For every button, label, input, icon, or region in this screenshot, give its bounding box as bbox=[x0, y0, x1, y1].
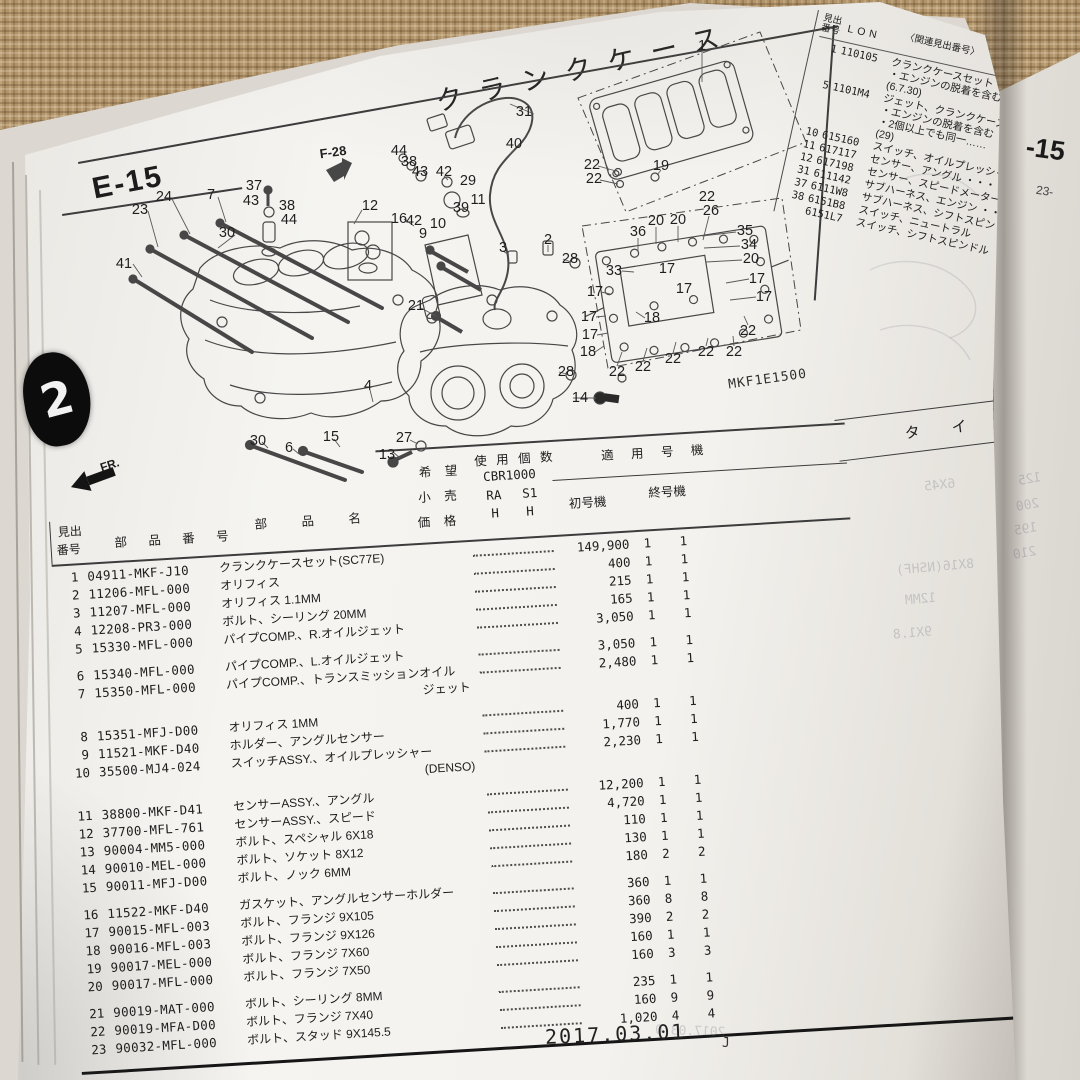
diagram-callout: 20 bbox=[648, 213, 664, 229]
diagram-callout: 13 bbox=[379, 447, 395, 463]
next-page-note: 23- bbox=[1035, 183, 1054, 200]
diagram-callout: 27 bbox=[396, 430, 412, 446]
diagram-callout: 31 bbox=[516, 104, 532, 120]
diagram-callout: 15 bbox=[323, 429, 339, 445]
diagram-callout: 1 bbox=[698, 38, 706, 54]
diagram-callout: 21 bbox=[408, 298, 424, 314]
diagram-callout: 28 bbox=[562, 251, 578, 267]
diagram-callout: 28 bbox=[558, 364, 574, 380]
diagram-callout: 17 bbox=[756, 289, 772, 305]
diagram-callout: 30 bbox=[250, 433, 266, 449]
diagram-callout: 6 bbox=[285, 440, 293, 456]
diagram-callout: 18 bbox=[644, 310, 660, 326]
diagram-callout: 17 bbox=[659, 261, 675, 277]
diagram-callout: 39 bbox=[453, 200, 469, 216]
catalog-photo: -15 23- クランクケース E-15 bbox=[0, 0, 1080, 1080]
diagram-callout: 44 bbox=[281, 212, 297, 228]
diagram-callout: 36 bbox=[630, 224, 646, 240]
diagram-callout: 7 bbox=[207, 187, 215, 203]
diagram-callout: 22 bbox=[665, 351, 681, 367]
diagram-callout: 17 bbox=[581, 309, 597, 325]
diagram-callout: 22 bbox=[635, 359, 651, 375]
diagram-callout: 4 bbox=[364, 378, 372, 394]
diagram-callout: 40 bbox=[506, 136, 522, 152]
diagram-callout: 17 bbox=[676, 281, 692, 297]
diagram-callout: 41 bbox=[116, 256, 132, 272]
diagram-callout: 17 bbox=[582, 327, 598, 343]
diagram-callout: 17 bbox=[587, 284, 603, 300]
diagram-callout: 18 bbox=[580, 344, 596, 360]
diagram-callout: 17 bbox=[749, 271, 765, 287]
diagram-callouts: 1314029113912443843421642910374338442324… bbox=[0, 0, 1080, 1080]
diagram-callout: 29 bbox=[460, 173, 476, 189]
diagram-callout: 22 bbox=[586, 171, 602, 187]
diagram-callout: 26 bbox=[703, 203, 719, 219]
bleed-through-text: 12MM bbox=[904, 591, 937, 609]
diagram-callout: 11 bbox=[470, 192, 485, 208]
diagram-callout: 37 bbox=[246, 178, 262, 194]
diagram-callout: 10 bbox=[430, 216, 446, 232]
diagram-callout: 9 bbox=[419, 226, 427, 242]
bleed-through-text: 2017.03.0 bbox=[655, 1023, 726, 1040]
diagram-callout: 42 bbox=[436, 164, 452, 180]
catalog-page: クランクケース E-15 bbox=[0, 0, 1080, 1080]
diagram-callout: 33 bbox=[606, 263, 622, 279]
diagram-callout: 20 bbox=[670, 212, 686, 228]
diagram-callout: 22 bbox=[740, 323, 756, 339]
diagram-callout: 43 bbox=[243, 193, 259, 209]
diagram-callout: 2 bbox=[544, 232, 552, 248]
diagram-callout: 19 bbox=[653, 158, 669, 174]
diagram-callout: 20 bbox=[743, 251, 759, 267]
diagram-callout: 3 bbox=[499, 240, 507, 256]
diagram-callout: 23 bbox=[132, 202, 148, 218]
diagram-callout: 30 bbox=[219, 225, 235, 241]
index-tab-number: 2 bbox=[35, 369, 80, 429]
diagram-callout: 43 bbox=[412, 164, 428, 180]
diagram-callout: 22 bbox=[609, 364, 625, 380]
next-page-section-code: -15 bbox=[1024, 131, 1067, 167]
diagram-callout: 24 bbox=[156, 189, 172, 205]
diagram-callout: 22 bbox=[698, 344, 714, 360]
diagram-callout: 22 bbox=[726, 344, 742, 360]
diagram-callout: 12 bbox=[362, 198, 378, 214]
diagram-callout: 16 bbox=[391, 211, 407, 227]
diagram-callout: 14 bbox=[572, 390, 588, 406]
